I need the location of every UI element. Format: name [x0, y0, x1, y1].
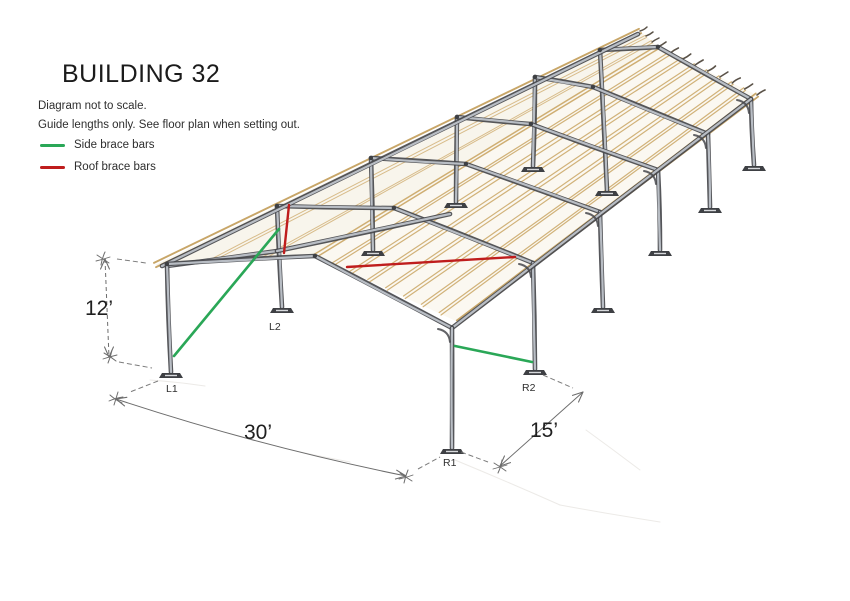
side-brace-right-line	[455, 346, 532, 362]
dimension-eave-height: 12’	[85, 297, 113, 320]
building-sketch-canvas: 12’ 30’ 15’ L1 L2 R1 R2	[0, 0, 850, 601]
dimension-front-span: 30’	[244, 421, 272, 444]
column-label-l1: L1	[166, 383, 178, 395]
column-label-r1: R1	[443, 457, 457, 469]
column-label-l2: L2	[269, 321, 281, 333]
dimension-bay-spacing: 15’	[530, 419, 558, 442]
column-label-r2: R2	[522, 382, 536, 394]
diagram-page: BUILDING 32 Diagram not to scale. Guide …	[0, 0, 850, 601]
